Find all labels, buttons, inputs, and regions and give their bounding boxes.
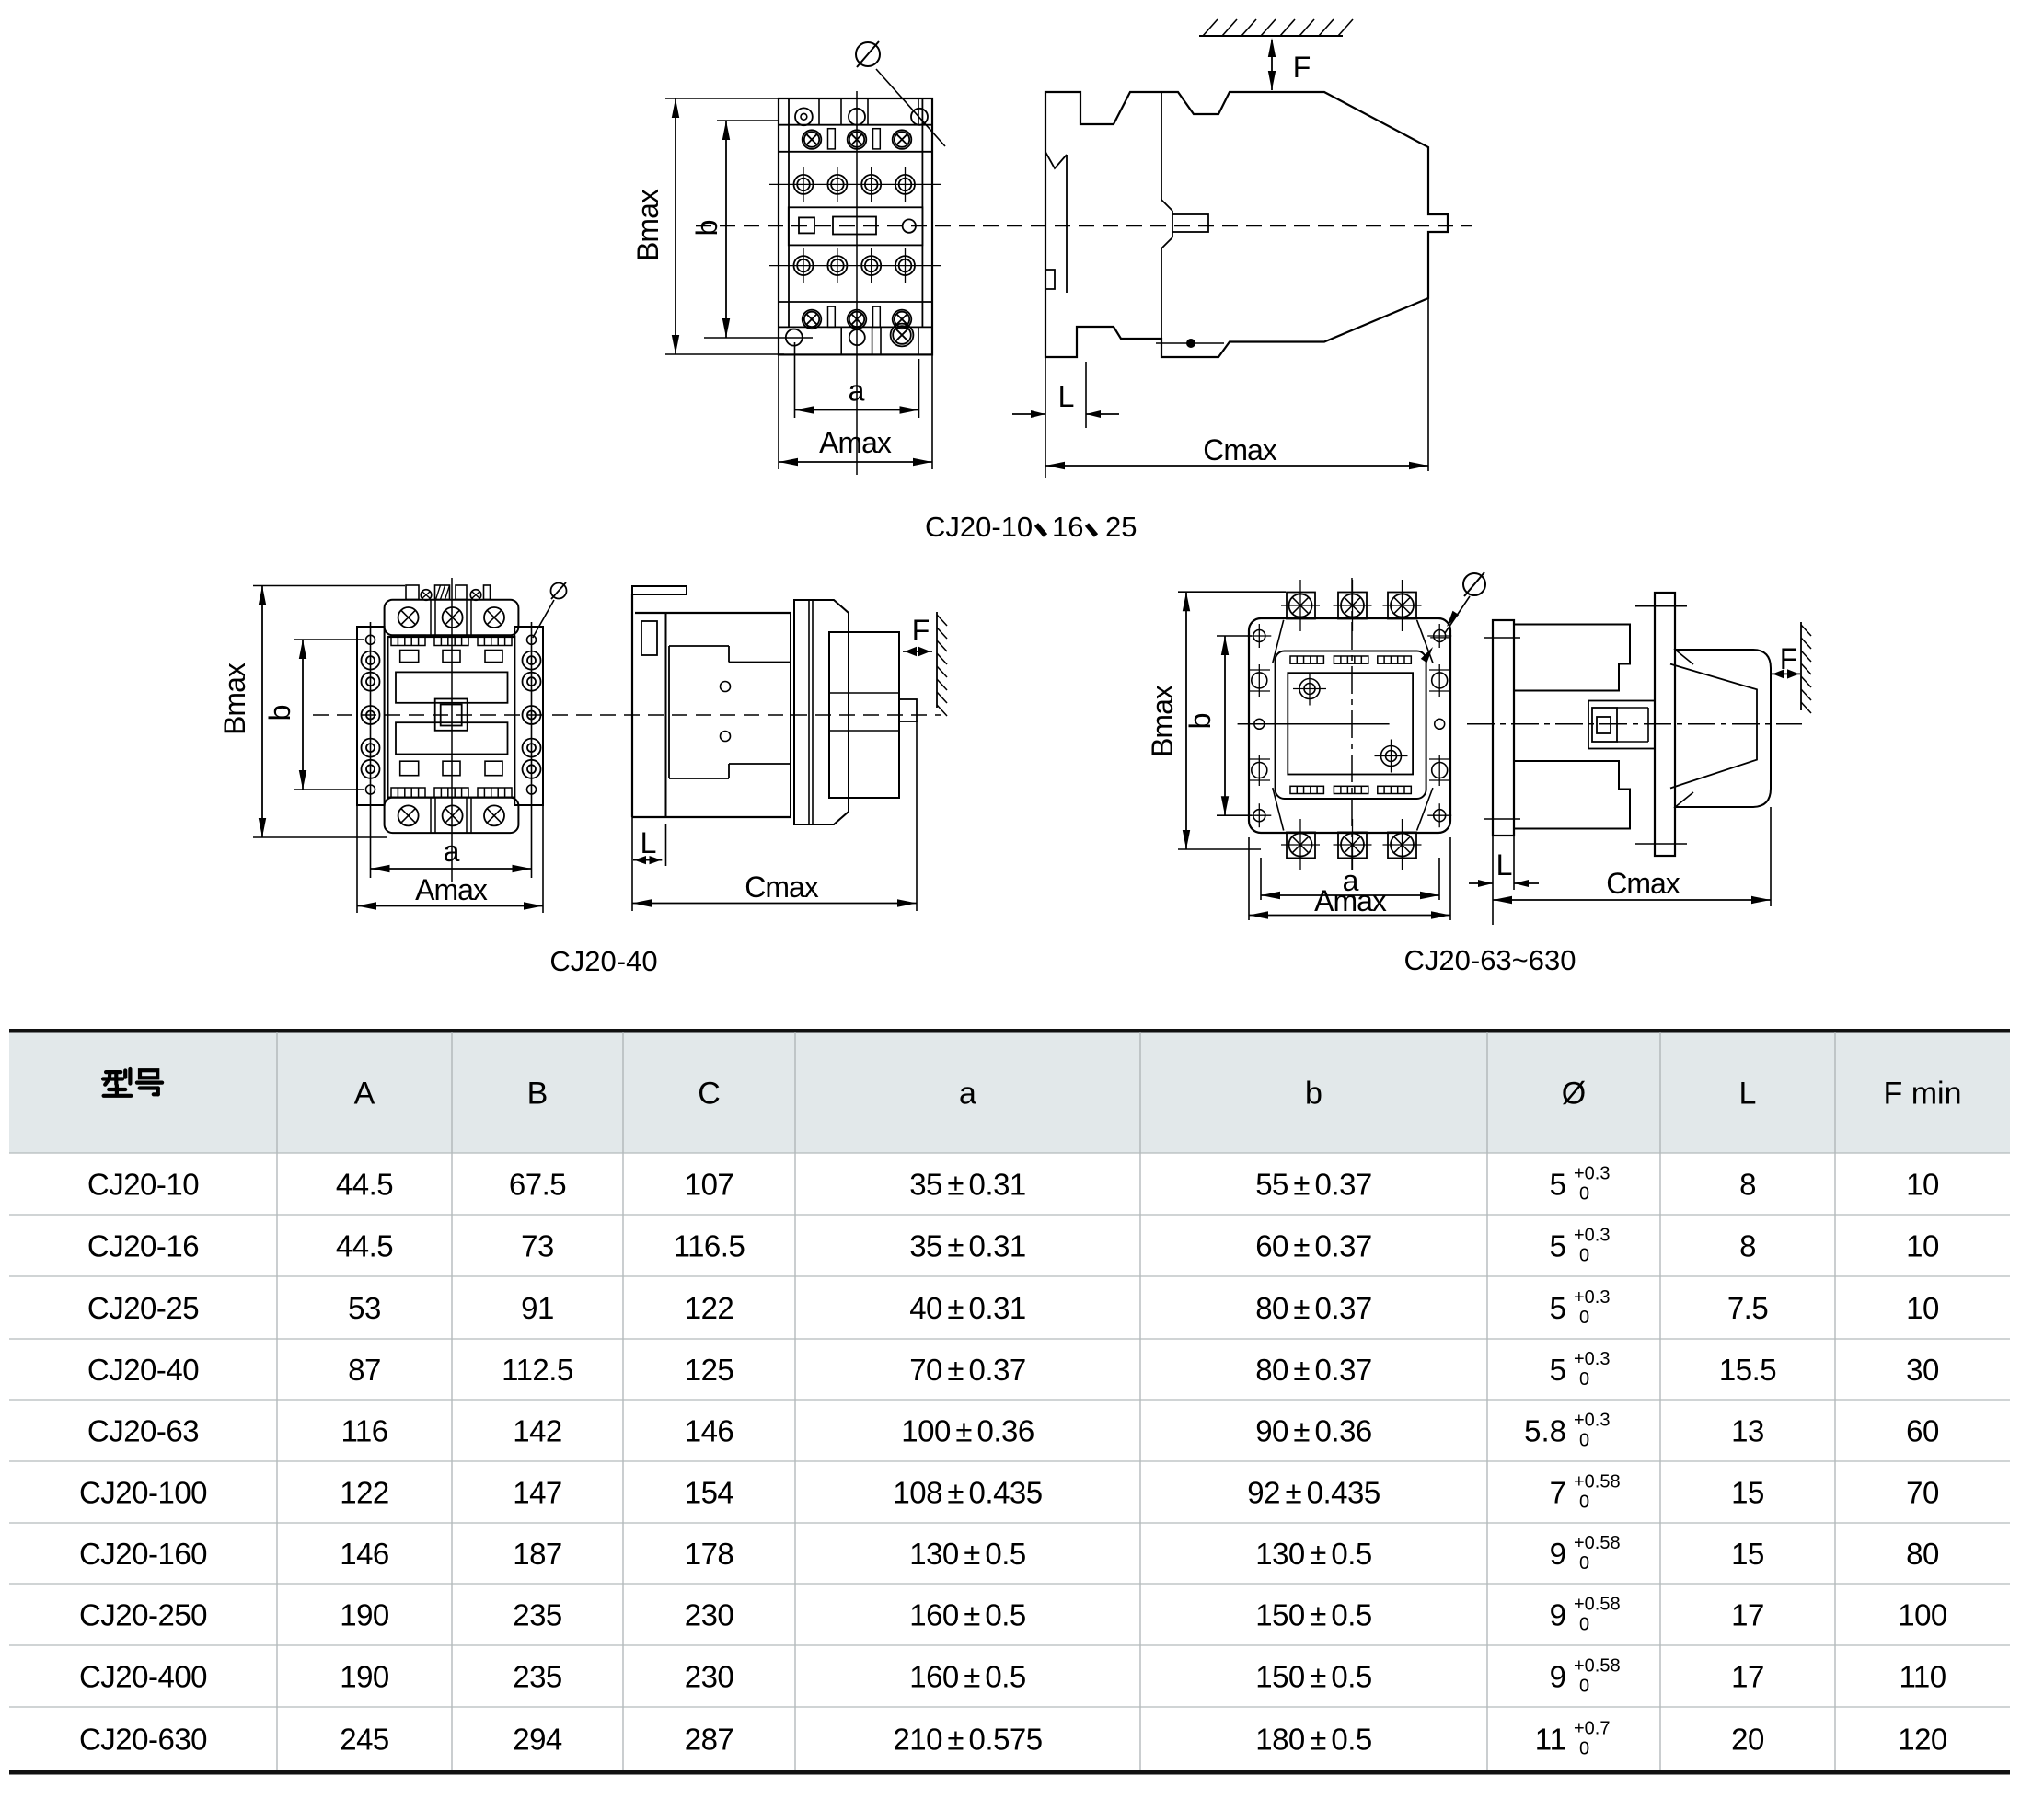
svg-text:80: 80 [1906,1537,1939,1571]
svg-text:F min: F min [1884,1077,1962,1112]
svg-text:53: 53 [348,1291,381,1325]
svg-text:B: B [527,1077,549,1112]
svg-text:C: C [698,1077,721,1112]
svg-text:0: 0 [1579,1431,1589,1451]
svg-text:146: 146 [340,1537,389,1571]
svg-text:0: 0 [1579,1308,1589,1328]
svg-text:CJ20-160: CJ20-160 [79,1537,207,1571]
svg-text:11: 11 [1535,1723,1566,1757]
svg-text:190: 190 [340,1660,389,1694]
svg-text:7: 7 [1550,1476,1566,1510]
svg-text:5: 5 [1550,1168,1566,1202]
svg-text:70±0.37: 70±0.37 [909,1353,1026,1387]
svg-text:190: 190 [340,1598,389,1632]
svg-text:90±0.36: 90±0.36 [1255,1414,1372,1448]
svg-text:Cmax: Cmax [1203,433,1277,467]
svg-text:+0.58: +0.58 [1574,1656,1621,1677]
svg-text:17: 17 [1731,1598,1764,1632]
svg-text:178: 178 [685,1537,734,1571]
svg-text:+0.58: +0.58 [1574,1472,1621,1493]
svg-text:30: 30 [1906,1353,1939,1387]
svg-text:+0.3: +0.3 [1574,1226,1610,1246]
svg-text:8: 8 [1739,1229,1756,1263]
svg-text:287: 287 [685,1723,734,1757]
svg-text:b: b [263,705,296,721]
svg-text:150±0.5: 150±0.5 [1255,1598,1372,1632]
svg-text:9: 9 [1550,1598,1566,1632]
svg-text:CJ20-63~630: CJ20-63~630 [1404,944,1576,976]
svg-text:150±0.5: 150±0.5 [1255,1660,1372,1694]
svg-text:25: 25 [1105,511,1137,543]
svg-text:67.5: 67.5 [509,1168,566,1202]
svg-text:A: A [354,1077,375,1112]
svg-text:146: 146 [685,1414,734,1448]
svg-text:130±0.5: 130±0.5 [909,1537,1026,1571]
svg-text:35±0.31: 35±0.31 [909,1229,1026,1263]
svg-text:9: 9 [1550,1537,1566,1571]
svg-text:0: 0 [1579,1246,1589,1266]
svg-text:16: 16 [1052,511,1083,543]
svg-text:Cmax: Cmax [745,870,819,904]
svg-text:0: 0 [1579,1369,1589,1389]
svg-text:235: 235 [513,1598,562,1632]
svg-text:122: 122 [340,1476,389,1510]
svg-text:15: 15 [1731,1537,1764,1571]
svg-text:b: b [1184,713,1217,729]
svg-text:CJ20-16: CJ20-16 [87,1229,199,1263]
svg-text:CJ20-630: CJ20-630 [79,1723,207,1757]
svg-text:L: L [1496,848,1512,882]
svg-text:L: L [1058,380,1074,413]
svg-text:73: 73 [521,1229,554,1263]
svg-text:0: 0 [1579,1493,1589,1513]
svg-text:55±0.37: 55±0.37 [1255,1168,1372,1202]
svg-text:245: 245 [340,1723,389,1757]
svg-text:F: F [1780,642,1797,675]
svg-text:a: a [849,375,865,408]
svg-text:44.5: 44.5 [336,1229,393,1263]
svg-text:20: 20 [1731,1723,1764,1757]
svg-text:15.5: 15.5 [1719,1353,1776,1387]
svg-text:+0.3: +0.3 [1574,1287,1610,1308]
svg-text:Amax: Amax [1314,884,1387,917]
svg-text:CJ20-25: CJ20-25 [87,1291,199,1325]
svg-text:70: 70 [1906,1476,1939,1510]
svg-text:CJ20-10: CJ20-10 [87,1168,199,1202]
svg-text:80±0.37: 80±0.37 [1255,1291,1372,1325]
svg-text:Bmax: Bmax [631,189,664,261]
svg-text:L: L [1739,1077,1757,1112]
svg-text:a: a [959,1077,976,1112]
svg-text:125: 125 [685,1353,734,1387]
svg-text:210±0.575: 210±0.575 [893,1723,1042,1757]
svg-text:+0.7: +0.7 [1574,1719,1610,1739]
svg-text:91: 91 [521,1291,554,1325]
svg-text:230: 230 [685,1598,734,1632]
svg-text:5.8: 5.8 [1524,1414,1566,1448]
svg-text:L: L [641,826,656,859]
svg-text:5: 5 [1550,1353,1566,1387]
svg-text:a: a [444,835,460,868]
svg-text:120: 120 [1898,1723,1947,1757]
svg-text:60: 60 [1906,1414,1939,1448]
svg-text:108±0.435: 108±0.435 [893,1476,1042,1510]
svg-text:100: 100 [1898,1598,1947,1632]
svg-text:35±0.31: 35±0.31 [909,1168,1026,1202]
svg-text:5: 5 [1550,1291,1566,1325]
svg-text:294: 294 [513,1723,562,1757]
svg-text:187: 187 [513,1537,562,1571]
svg-text:F: F [1293,51,1311,84]
svg-text:Ø: Ø [1562,1077,1586,1112]
svg-text:5: 5 [1550,1229,1566,1263]
svg-text:80±0.37: 80±0.37 [1255,1353,1372,1387]
svg-text:7.5: 7.5 [1727,1291,1768,1325]
svg-text:8: 8 [1739,1168,1756,1202]
svg-text:10: 10 [1906,1168,1939,1202]
svg-text:0: 0 [1579,1739,1589,1759]
svg-text:180±0.5: 180±0.5 [1255,1723,1372,1757]
svg-text:+0.58: +0.58 [1574,1533,1621,1553]
svg-text:110: 110 [1899,1660,1946,1694]
svg-text:b: b [1305,1077,1322,1112]
svg-text:112.5: 112.5 [502,1353,573,1387]
svg-text:154: 154 [685,1476,734,1510]
svg-text:CJ20-63: CJ20-63 [87,1414,199,1448]
svg-text:100±0.36: 100±0.36 [901,1414,1034,1448]
svg-text:130±0.5: 130±0.5 [1255,1537,1372,1571]
svg-text:CJ20-100: CJ20-100 [79,1476,207,1510]
svg-text:116.5: 116.5 [674,1229,745,1263]
svg-text:44.5: 44.5 [336,1168,393,1202]
svg-text:0: 0 [1579,1677,1589,1697]
svg-text:142: 142 [513,1414,562,1448]
svg-text:Cmax: Cmax [1606,867,1680,900]
svg-text:116: 116 [341,1414,387,1448]
svg-text:122: 122 [685,1291,734,1325]
svg-text:15: 15 [1731,1476,1764,1510]
svg-text:Amax: Amax [415,873,488,906]
svg-text:10: 10 [1906,1291,1939,1325]
svg-text:+0.3: +0.3 [1574,1411,1610,1431]
svg-text:CJ20-40: CJ20-40 [549,945,657,977]
svg-text:160±0.5: 160±0.5 [909,1598,1026,1632]
svg-text:+0.58: +0.58 [1574,1595,1621,1615]
svg-text:Amax: Amax [819,426,892,459]
svg-text:17: 17 [1731,1660,1764,1694]
svg-text:235: 235 [513,1660,562,1694]
svg-text:F: F [912,614,930,647]
svg-text:b: b [690,220,723,236]
svg-text:40±0.31: 40±0.31 [909,1291,1026,1325]
svg-text:60±0.37: 60±0.37 [1255,1229,1372,1263]
svg-text:0: 0 [1579,1615,1589,1635]
svg-text:13: 13 [1731,1414,1764,1448]
svg-text:Bmax: Bmax [218,663,251,735]
svg-text:0: 0 [1579,1553,1589,1574]
svg-text:147: 147 [513,1476,562,1510]
svg-text:Bmax: Bmax [1146,685,1179,757]
svg-text:160±0.5: 160±0.5 [909,1660,1026,1694]
svg-text:CJ20-250: CJ20-250 [79,1598,207,1632]
svg-text:10: 10 [1906,1229,1939,1263]
svg-text:CJ20-400: CJ20-400 [79,1660,207,1694]
svg-text:0: 0 [1579,1184,1589,1205]
svg-text:92±0.435: 92±0.435 [1247,1476,1380,1510]
svg-text:+0.3: +0.3 [1574,1349,1610,1369]
svg-text:230: 230 [685,1660,734,1694]
svg-text:CJ20-10: CJ20-10 [925,511,1033,543]
svg-text:+0.3: +0.3 [1574,1164,1610,1184]
svg-text:9: 9 [1550,1660,1566,1694]
svg-text:107: 107 [685,1168,734,1202]
svg-text:CJ20-40: CJ20-40 [87,1353,199,1387]
svg-text:87: 87 [348,1353,381,1387]
